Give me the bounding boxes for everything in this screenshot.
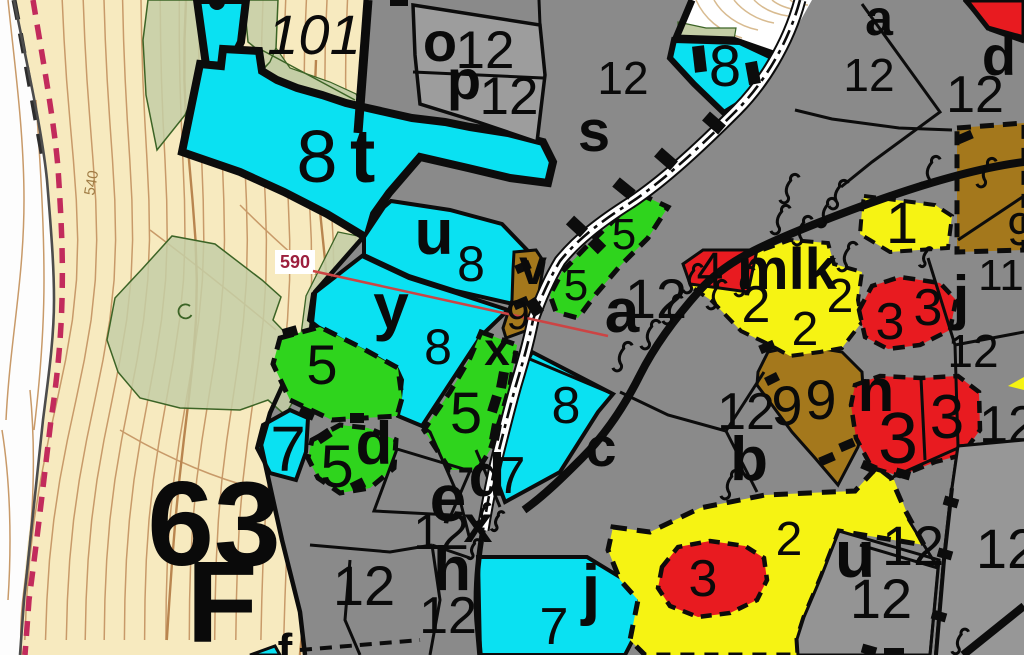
- svg-text:12: 12: [480, 67, 539, 126]
- svg-text:12: 12: [625, 267, 687, 330]
- svg-text:11: 11: [978, 251, 1024, 300]
- svg-text:5: 5: [612, 210, 636, 259]
- svg-text:u: u: [414, 196, 453, 268]
- svg-text:101: 101: [267, 3, 360, 66]
- svg-text:d: d: [356, 410, 393, 477]
- svg-text:f: f: [278, 625, 293, 655]
- svg-text:t: t: [350, 114, 375, 199]
- svg-text:p: p: [447, 48, 481, 111]
- svg-text:12: 12: [882, 514, 944, 577]
- svg-text:y: y: [373, 270, 409, 342]
- svg-text:3: 3: [689, 550, 718, 608]
- svg-text:12: 12: [947, 325, 998, 377]
- svg-text:b: b: [730, 425, 768, 494]
- svg-text:8: 8: [424, 319, 452, 375]
- svg-text:4: 4: [697, 244, 724, 297]
- svg-text:3: 3: [878, 399, 918, 479]
- svg-text:2: 2: [776, 513, 803, 566]
- svg-text:s: s: [578, 99, 610, 164]
- svg-text:2: 2: [827, 270, 854, 323]
- svg-text:v: v: [519, 239, 547, 295]
- svg-text:9: 9: [1007, 203, 1024, 255]
- svg-text:8: 8: [296, 115, 337, 198]
- svg-text:5: 5: [450, 381, 482, 446]
- svg-text:j: j: [952, 264, 970, 331]
- svg-text:5: 5: [320, 433, 353, 500]
- svg-text:9: 9: [506, 291, 529, 338]
- svg-text:8: 8: [457, 236, 485, 292]
- svg-text:9: 9: [805, 368, 836, 431]
- svg-text:12: 12: [976, 517, 1024, 580]
- svg-text:12: 12: [597, 52, 648, 104]
- svg-text:7: 7: [540, 598, 569, 655]
- svg-text:9: 9: [771, 374, 802, 437]
- svg-text:590: 590: [280, 252, 310, 272]
- svg-text:12: 12: [843, 49, 894, 101]
- svg-text:2: 2: [742, 276, 771, 334]
- svg-text:12: 12: [946, 66, 1004, 124]
- svg-text:8: 8: [709, 34, 741, 99]
- svg-text:3: 3: [914, 279, 943, 337]
- svg-text:3: 3: [876, 293, 905, 351]
- svg-text:2: 2: [792, 303, 819, 356]
- svg-text:3: 3: [930, 383, 964, 452]
- svg-text:5: 5: [564, 261, 588, 310]
- svg-text:12: 12: [333, 554, 395, 617]
- svg-text:8: 8: [552, 377, 581, 435]
- svg-text:j: j: [580, 551, 601, 627]
- svg-text:c: c: [585, 415, 616, 478]
- svg-text:7: 7: [497, 447, 526, 505]
- svg-text:1: 1: [886, 191, 918, 256]
- svg-text:5: 5: [306, 333, 337, 396]
- svg-text:a: a: [865, 0, 894, 46]
- svg-text:F: F: [187, 537, 258, 655]
- svg-text:12: 12: [419, 587, 477, 645]
